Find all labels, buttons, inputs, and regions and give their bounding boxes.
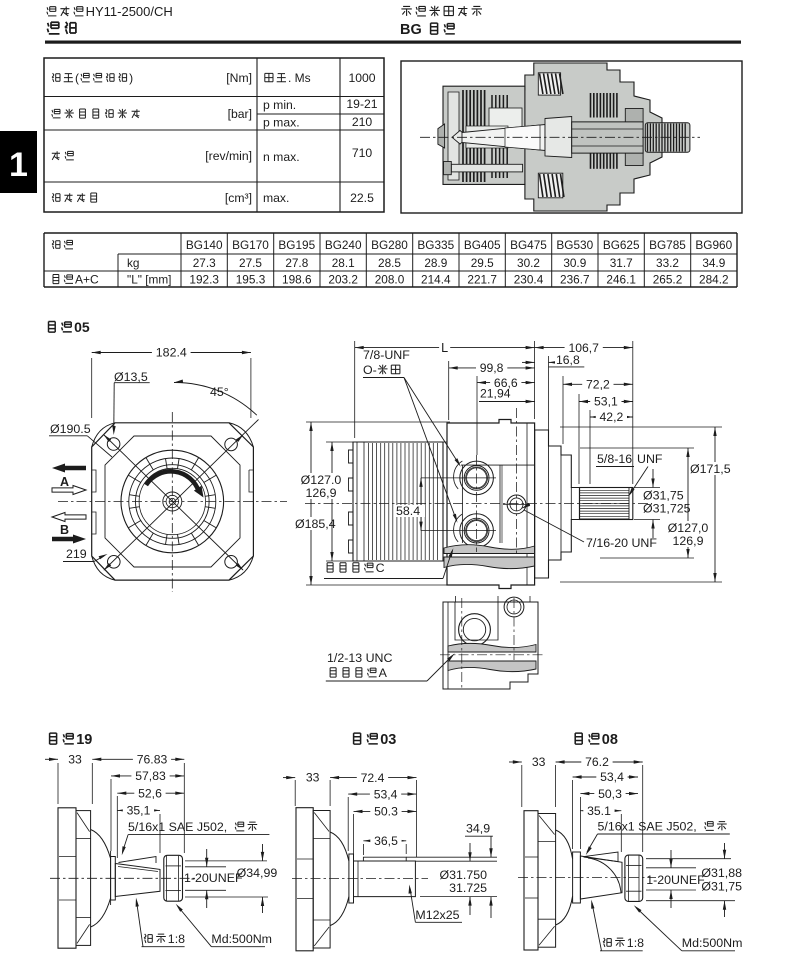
svg-text:33: 33 (306, 771, 320, 785)
svg-text:[rev/min]: [rev/min] (205, 149, 252, 163)
svg-text:50.3: 50.3 (374, 805, 398, 819)
svg-text:UNF: UNF (637, 452, 663, 466)
svg-text:221.7: 221.7 (467, 273, 497, 287)
svg-text:30.2: 30.2 (517, 256, 540, 270)
svg-text:max.: max. (263, 191, 289, 205)
svg-text:Ø127.0: Ø127.0 (301, 473, 342, 487)
svg-text:1-20UNEF: 1-20UNEF (184, 871, 243, 885)
svg-text:n max.: n max. (263, 150, 300, 164)
svg-text:A+C: A+C (75, 273, 99, 287)
svg-text:126,9: 126,9 (672, 534, 703, 548)
svg-text:BG530: BG530 (556, 238, 593, 252)
svg-text:"L" [mm]: "L" [mm] (127, 273, 171, 287)
svg-text:(: ( (75, 71, 79, 85)
svg-text:BG240: BG240 (325, 238, 362, 252)
svg-text:Md:500Nm: Md:500Nm (211, 932, 272, 946)
svg-text:[Nm]: [Nm] (226, 71, 252, 85)
svg-text:58.4: 58.4 (396, 504, 420, 518)
svg-text:33: 33 (532, 755, 546, 769)
svg-text:230.4: 230.4 (514, 273, 544, 287)
svg-text:05: 05 (74, 319, 90, 335)
svg-text:126,9: 126,9 (305, 486, 336, 500)
svg-text:1:8: 1:8 (627, 936, 644, 950)
svg-text:1/2-13 UNC: 1/2-13 UNC (327, 651, 392, 665)
svg-text:19: 19 (76, 732, 92, 748)
svg-text:BG335: BG335 (417, 238, 454, 252)
svg-text:Md:500Nm: Md:500Nm (682, 936, 743, 950)
svg-text:[bar]: [bar] (228, 107, 252, 121)
svg-text:BG960: BG960 (695, 238, 732, 252)
svg-text:p max.: p max. (263, 116, 300, 130)
svg-text:Ø185,4: Ø185,4 (295, 517, 336, 531)
svg-text:203.2: 203.2 (328, 273, 358, 287)
svg-text:7/16-20 UNF: 7/16-20 UNF (586, 536, 657, 550)
svg-text:195.3: 195.3 (236, 273, 266, 287)
svg-text:1: 1 (9, 146, 28, 184)
svg-text:27.5: 27.5 (239, 256, 262, 270)
svg-text:1:8: 1:8 (168, 932, 185, 946)
svg-text:52,6: 52,6 (138, 786, 162, 800)
svg-text:p min.: p min. (263, 98, 296, 112)
svg-text:1-20UNEF: 1-20UNEF (646, 873, 705, 887)
svg-text:182.4: 182.4 (156, 346, 187, 360)
svg-text:5/16x1 SAE J502,: 5/16x1 SAE J502, (128, 820, 227, 834)
svg-text:34,9: 34,9 (466, 822, 490, 836)
svg-text:53,4: 53,4 (374, 787, 398, 801)
svg-text:Ø31.750: Ø31.750 (439, 868, 487, 882)
svg-text:34.9: 34.9 (702, 256, 725, 270)
svg-text:76.83: 76.83 (137, 753, 168, 767)
svg-text:28.9: 28.9 (424, 256, 447, 270)
svg-text:284.2: 284.2 (699, 273, 729, 287)
svg-text:L: L (441, 341, 448, 355)
svg-text:21,94: 21,94 (480, 387, 511, 401)
svg-text:53,1: 53,1 (594, 395, 618, 409)
svg-text:Ø13,5: Ø13,5 (114, 370, 148, 384)
svg-text:BG280: BG280 (371, 238, 408, 252)
svg-text:5/16x1 SAE J502,: 5/16x1 SAE J502, (598, 820, 697, 834)
svg-text:22.5: 22.5 (350, 191, 374, 205)
svg-text:): ) (129, 71, 133, 85)
svg-text:BG405: BG405 (464, 238, 501, 252)
svg-text:7/8-UNF: 7/8-UNF (363, 348, 410, 362)
svg-text:57,83: 57,83 (135, 769, 166, 783)
svg-text:BG: BG (400, 22, 422, 38)
svg-text:1000: 1000 (348, 71, 375, 85)
svg-text:99,8: 99,8 (480, 361, 504, 375)
svg-text:45°: 45° (210, 385, 229, 399)
svg-text:BG195: BG195 (278, 238, 315, 252)
svg-text:30.9: 30.9 (563, 256, 586, 270)
svg-text:214.4: 214.4 (421, 273, 451, 287)
svg-text:219: 219 (66, 547, 87, 561)
svg-text:A: A (379, 666, 388, 680)
svg-text:HY11-2500/CH: HY11-2500/CH (86, 4, 173, 19)
svg-text:B: B (60, 523, 69, 537)
svg-text:Ø34,99: Ø34,99 (237, 866, 278, 880)
svg-text:42,2: 42,2 (600, 410, 624, 424)
svg-text:BG140: BG140 (186, 238, 223, 252)
svg-text:33: 33 (68, 753, 82, 767)
svg-text:M12x25: M12x25 (415, 908, 459, 922)
svg-text:31.7: 31.7 (610, 256, 633, 270)
svg-text:Ø190.5: Ø190.5 (50, 422, 91, 436)
svg-text:08: 08 (602, 732, 618, 748)
svg-text:50,3: 50,3 (598, 787, 622, 801)
svg-text:BG170: BG170 (232, 238, 269, 252)
svg-text:36,5: 36,5 (374, 834, 398, 848)
svg-text:710: 710 (352, 146, 373, 160)
svg-text:198.6: 198.6 (282, 273, 312, 287)
svg-text:Ø31,75: Ø31,75 (643, 489, 684, 503)
svg-text:31.725: 31.725 (449, 881, 487, 895)
svg-text:208.0: 208.0 (375, 273, 405, 287)
svg-text:210: 210 (352, 115, 373, 129)
svg-text:236.7: 236.7 (560, 273, 590, 287)
svg-text:35.1: 35.1 (587, 804, 611, 818)
svg-text:03: 03 (380, 732, 396, 748)
svg-text:27.8: 27.8 (285, 256, 308, 270)
svg-text:246.1: 246.1 (606, 273, 636, 287)
svg-text:A: A (60, 475, 69, 489)
svg-text:19-21: 19-21 (346, 97, 377, 111)
svg-text:Ø171,5: Ø171,5 (690, 462, 731, 476)
svg-text:Ø31,725: Ø31,725 (643, 502, 691, 516)
svg-text:192.3: 192.3 (189, 273, 219, 287)
svg-text:72,2: 72,2 (586, 378, 610, 392)
svg-text:28.5: 28.5 (378, 256, 401, 270)
svg-text:[cm³]: [cm³] (225, 191, 252, 205)
svg-text:76.2: 76.2 (585, 755, 609, 769)
svg-text:16,8: 16,8 (556, 353, 580, 367)
svg-text:Ø31,75: Ø31,75 (701, 880, 742, 894)
svg-text:. Ms: . Ms (288, 71, 311, 85)
svg-text:BG785: BG785 (649, 238, 686, 252)
svg-text:29.5: 29.5 (471, 256, 494, 270)
svg-text:O-: O- (363, 363, 377, 377)
svg-text:C: C (376, 561, 385, 575)
svg-text:Ø31,88: Ø31,88 (701, 866, 742, 880)
svg-text:BG475: BG475 (510, 238, 547, 252)
svg-text:53,4: 53,4 (600, 770, 624, 784)
svg-text:265.2: 265.2 (653, 273, 683, 287)
svg-text:33.2: 33.2 (656, 256, 679, 270)
svg-text:kg: kg (127, 256, 139, 270)
svg-text:72.4: 72.4 (361, 771, 385, 785)
svg-text:27.3: 27.3 (193, 256, 216, 270)
svg-text:BG625: BG625 (603, 238, 640, 252)
svg-text:5/8-16: 5/8-16 (597, 452, 632, 466)
svg-text:28.1: 28.1 (332, 256, 355, 270)
svg-text:Ø127,0: Ø127,0 (668, 521, 709, 535)
svg-text:35,1: 35,1 (127, 804, 151, 818)
